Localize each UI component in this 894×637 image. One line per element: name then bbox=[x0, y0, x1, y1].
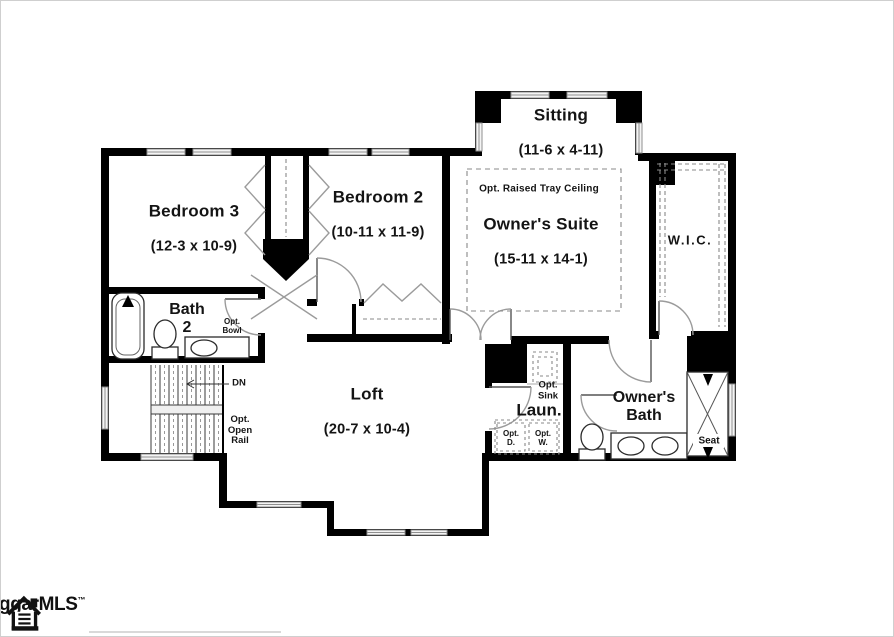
sitting-room-name: Sitting bbox=[519, 105, 604, 124]
opt-washer-note: Opt. W. bbox=[535, 430, 551, 448]
sitting-room-dims: (11-6 x 4-11) bbox=[519, 142, 604, 158]
stair-landing bbox=[151, 405, 223, 414]
bath2-vanity bbox=[185, 337, 249, 358]
floorplan-drawing bbox=[1, 1, 894, 637]
floorplan-image: Sitting (11-6 x 4-11) Opt. Raised Tray C… bbox=[0, 0, 894, 637]
owners-suite-double-doors bbox=[450, 309, 511, 340]
opt-sink-note: Opt. Sink bbox=[538, 380, 558, 401]
window bbox=[329, 149, 367, 155]
shower-seat-note: Seat bbox=[698, 435, 719, 446]
wic-label: W.I.C. bbox=[668, 234, 712, 249]
window bbox=[193, 149, 231, 155]
bath2-label: Bath 2 bbox=[169, 301, 205, 337]
bedroom3-closet-bifold bbox=[245, 165, 265, 255]
loft-label: Loft (20-7 x 10-4) bbox=[324, 367, 410, 456]
stairs-dn-note: DN bbox=[232, 379, 246, 390]
window bbox=[636, 123, 642, 153]
owners-bath-label: Owner's Bath bbox=[613, 389, 676, 425]
wic-door bbox=[659, 301, 693, 335]
bedroom2-door bbox=[317, 258, 361, 302]
bedroom2-closet-bifold bbox=[364, 284, 441, 303]
bedroom2-dims: (10-11 x 11-9) bbox=[331, 224, 424, 240]
opt-bowl-note: Opt. Bowl bbox=[222, 318, 241, 336]
window bbox=[367, 530, 405, 535]
mls-watermark: ggarMLS™ bbox=[5, 594, 85, 619]
opt-dryer-note: Opt. D. bbox=[503, 430, 519, 448]
opt-open-rail-note: Opt. Open Rail bbox=[228, 415, 252, 447]
window bbox=[411, 530, 447, 535]
owners-suite-name: Owner's Suite bbox=[483, 214, 598, 233]
optional-sink bbox=[533, 352, 557, 382]
bedroom3-label: Bedroom 3 (12-3 x 10-9) bbox=[149, 184, 240, 273]
bedroom3-name: Bedroom 3 bbox=[149, 201, 240, 220]
owners-vanity bbox=[611, 433, 687, 459]
owners-toilet bbox=[579, 424, 605, 460]
bedroom2-name: Bedroom 2 bbox=[331, 187, 424, 206]
window bbox=[372, 149, 409, 155]
window bbox=[141, 454, 193, 460]
loft-dims: (20-7 x 10-4) bbox=[324, 421, 410, 437]
sitting-room-label: Sitting (11-6 x 4-11) bbox=[519, 88, 604, 177]
trademark-symbol: ™ bbox=[77, 596, 85, 605]
window bbox=[147, 149, 185, 155]
bedroom3-dims: (12-3 x 10-9) bbox=[149, 238, 240, 254]
bedroom2-side-closet-bifold bbox=[309, 165, 329, 255]
owners-suite-dims: (15-11 x 14-1) bbox=[483, 251, 598, 267]
bathtub bbox=[112, 293, 144, 359]
watermark-line bbox=[89, 631, 281, 633]
laundry-label: Laun. bbox=[516, 400, 561, 419]
window bbox=[476, 123, 482, 151]
house-icon bbox=[5, 594, 45, 634]
loft-name: Loft bbox=[324, 384, 410, 403]
tray-ceiling-note: Opt. Raised Tray Ceiling bbox=[479, 183, 599, 194]
owners-suite-label: Owner's Suite (15-11 x 14-1) bbox=[483, 197, 598, 286]
owners-bath-door bbox=[609, 340, 651, 382]
bedroom2-label: Bedroom 2 (10-11 x 11-9) bbox=[331, 170, 424, 259]
stairs bbox=[151, 365, 229, 453]
window bbox=[102, 387, 108, 429]
window bbox=[729, 384, 735, 436]
window bbox=[257, 502, 301, 507]
